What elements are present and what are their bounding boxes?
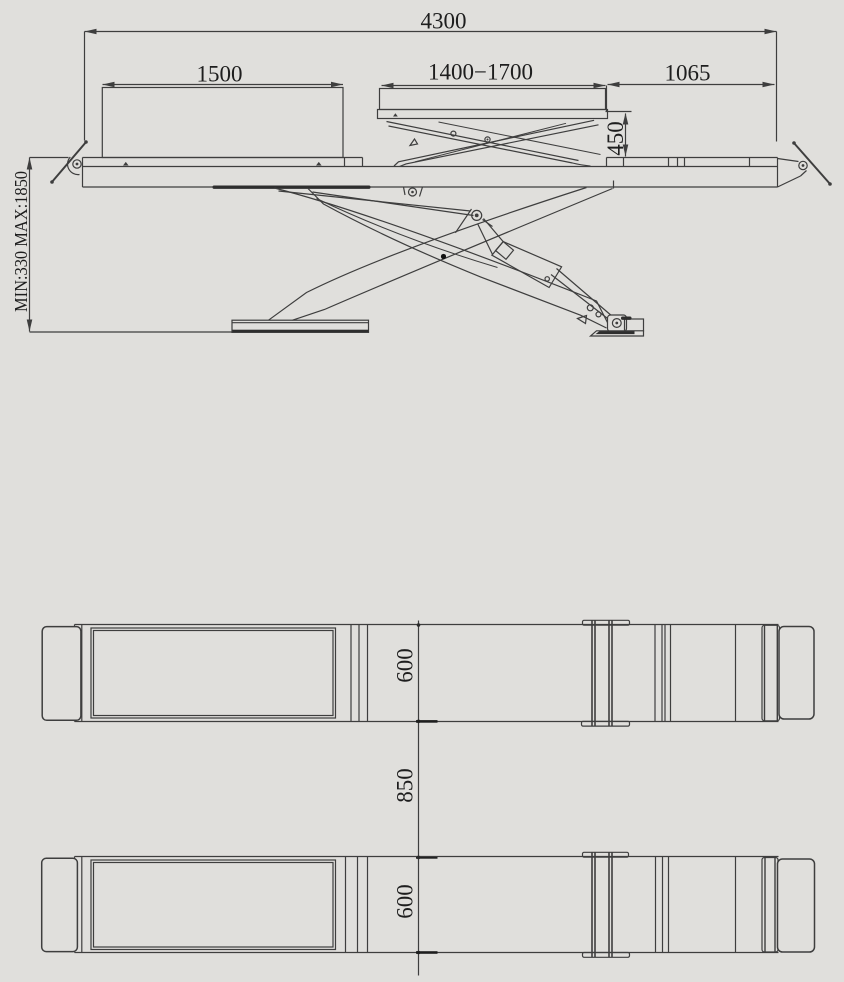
svg-text:1400−1700: 1400−1700 [428, 60, 533, 85]
svg-text:1500: 1500 [197, 62, 243, 87]
svg-text:600: 600 [393, 648, 418, 683]
svg-text:850: 850 [393, 768, 418, 803]
svg-text:600: 600 [393, 884, 418, 919]
svg-text:450: 450 [603, 121, 628, 156]
svg-text:1065: 1065 [665, 61, 711, 86]
svg-text:MIN:330 MAX:1850: MIN:330 MAX:1850 [11, 171, 31, 312]
svg-text:4300: 4300 [421, 9, 467, 34]
